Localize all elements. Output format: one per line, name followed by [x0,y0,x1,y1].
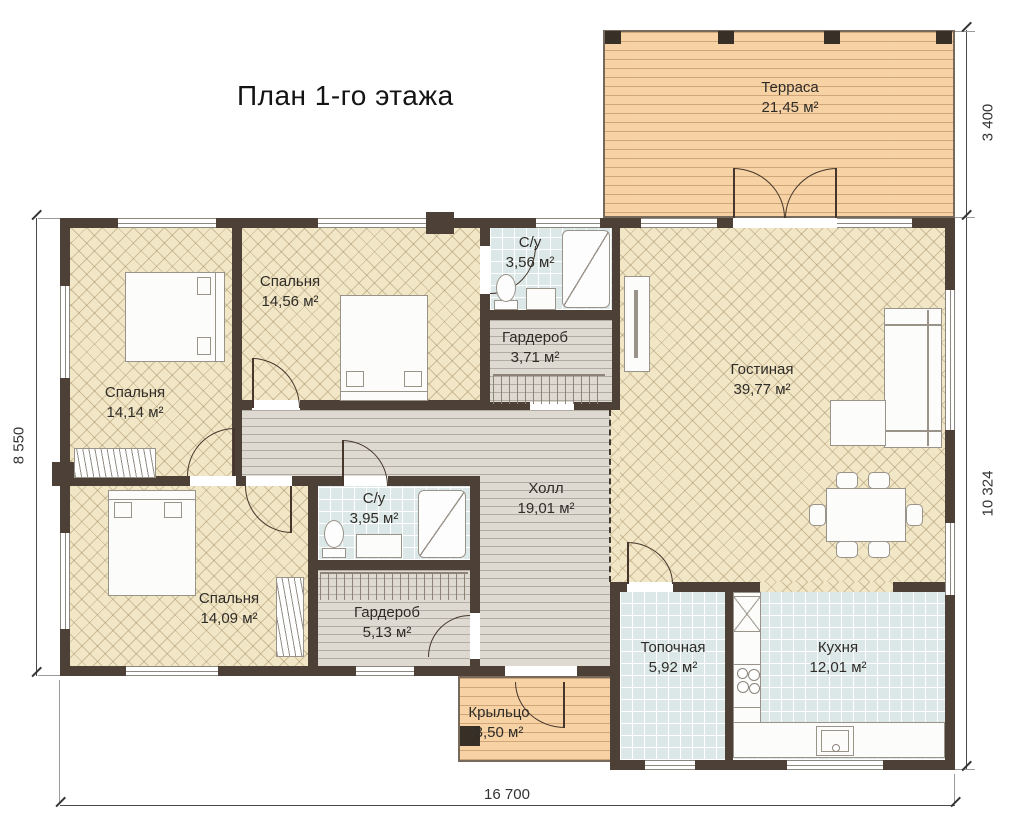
room-name: Кухня [773,638,903,658]
wall-pier [52,462,76,486]
room-area: 14,14 м² [70,403,200,423]
pillow [114,502,132,518]
room-label-boiler: Топочная 5,92 м² [608,638,738,678]
room-area: 5,92 м² [608,658,738,678]
sofa-backrest [927,310,929,446]
hanger-rail [320,572,468,600]
window [318,218,426,228]
room-name: Топочная [608,638,738,658]
terrace-post [605,31,621,44]
sofa-armrest [885,324,941,326]
room-name: Гардероб [470,328,600,348]
bedroom3-door-opening [246,476,292,486]
room-area: 5,13 м² [322,623,452,643]
window [945,290,955,430]
pillow [346,371,364,387]
dimension-label-right-top: 3 400 [980,81,997,165]
dining-chair [836,472,858,489]
door-leaf [233,428,235,476]
room-label-bedroom1: Спальня 14,14 м² [70,383,200,423]
window [834,218,912,228]
extension-line [955,769,975,770]
sink [526,288,556,310]
room-area: 14,56 м² [225,292,355,312]
room-label-bedroom3: Спальня 14,09 м² [164,589,294,629]
back-door-opening [645,760,695,770]
room-name: С/у [309,489,439,509]
room-name: С/у [465,233,595,253]
bed-headboard [340,391,428,401]
page-title: План 1-го этажа [237,80,454,112]
pillow [404,371,422,387]
pillow [197,277,211,295]
hall-living-opening [610,410,620,582]
window [118,218,216,228]
dimension-label-bottom: 16 700 [460,786,554,803]
dining-table [826,488,906,542]
room-name: Спальня [70,383,200,403]
extension-line [955,31,975,32]
dining-chair [836,541,858,558]
dimension-tick [950,797,960,807]
hanger-rail [493,374,605,404]
burner-icon [748,669,760,681]
wardrobe-cabinet [74,448,156,478]
dimension-label-right-side: 10 324 [980,452,997,536]
appliance-icon [733,596,761,632]
dining-chair [868,541,890,558]
window [126,666,218,676]
tv-icon [634,290,638,358]
dimension-line-bottom [60,805,955,806]
room-name: Спальня [164,589,294,609]
room-area: 19,01 м² [481,499,611,519]
room-label-living: Гостиная 39,77 м² [697,360,827,400]
window [356,666,414,676]
entrance-door-opening [505,666,577,676]
window [60,533,70,629]
terrace-deck [603,30,955,218]
door-leaf [627,542,629,584]
window [641,218,717,228]
hall-floor-main [480,410,610,666]
door-leaf [835,168,837,218]
door-leaf [252,358,254,408]
sink [356,534,402,558]
room-label-kitchen: Кухня 12,01 м² [773,638,903,678]
door-leaf [290,486,292,533]
living-kitchen-opening [760,582,893,592]
room-label-wardrobe1: Гардероб 3,71 м² [470,328,600,368]
room-area: 39,77 м² [697,380,827,400]
room-name: Холл [481,479,611,499]
dimension-line-right [966,30,967,770]
pillow [164,502,182,518]
wall-pier [426,212,454,234]
burner-icon [749,683,760,694]
toilet [496,274,516,302]
terrace-door-opening [733,218,837,228]
room-label-bath1: С/у 3,56 м² [465,233,595,273]
floor-plan: План 1-го этажа [0,0,1011,832]
window [60,286,70,378]
dimension-label-left: 8 550 [11,404,28,488]
room-name: Гардероб [322,603,452,623]
room-area: 3,56 м² [465,253,595,273]
terrace-post [936,31,952,44]
bed-headboard [108,490,196,500]
extension-line [38,675,60,676]
room-label-terrace: Терраса 21,45 м² [725,78,855,118]
dining-chair [906,504,923,526]
room-label-wardrobe2: Гардероб 5,13 м² [322,603,452,643]
bedroom1-door-opening [190,476,236,486]
door-leaf [733,168,735,218]
extension-line [38,218,60,219]
room-area: 3,95 м² [309,509,439,529]
toilet-tank [322,548,346,558]
room-name: Спальня [225,272,355,292]
burner-icon [737,681,749,693]
room-area: 21,45 м² [725,98,855,118]
room-area: 3,71 м² [470,348,600,368]
extension-line [59,680,60,804]
dimension-line-left [36,218,37,676]
room-label-hall: Холл 19,01 м² [481,479,611,519]
room-area: 3,50 м² [434,723,564,743]
door-leaf [342,440,344,486]
sofa [884,308,942,448]
room-name: Крыльцо [434,703,564,723]
pillow [197,337,211,355]
window [945,523,955,595]
room-label-bedroom2: Спальня 14,56 м² [225,272,355,312]
coffee-table [830,400,886,446]
faucet-icon [832,744,840,752]
burner-icon [737,668,748,679]
window [787,760,883,770]
window [536,218,600,228]
terrace-post [718,31,734,44]
dining-chair [868,472,890,489]
wardrobe2-door-opening [470,613,480,659]
room-label-porch: Крыльцо 3,50 м² [434,703,564,743]
room-area: 14,09 м² [164,609,294,629]
room-name: Гостиная [697,360,827,380]
room-area: 12,01 м² [773,658,903,678]
terrace-post [824,31,840,44]
room-name: Терраса [725,78,855,98]
sofa-armrest [885,430,941,432]
dining-chair [809,504,826,526]
room-label-bath2: С/у 3,95 м² [309,489,439,529]
bed-headboard [215,272,225,362]
